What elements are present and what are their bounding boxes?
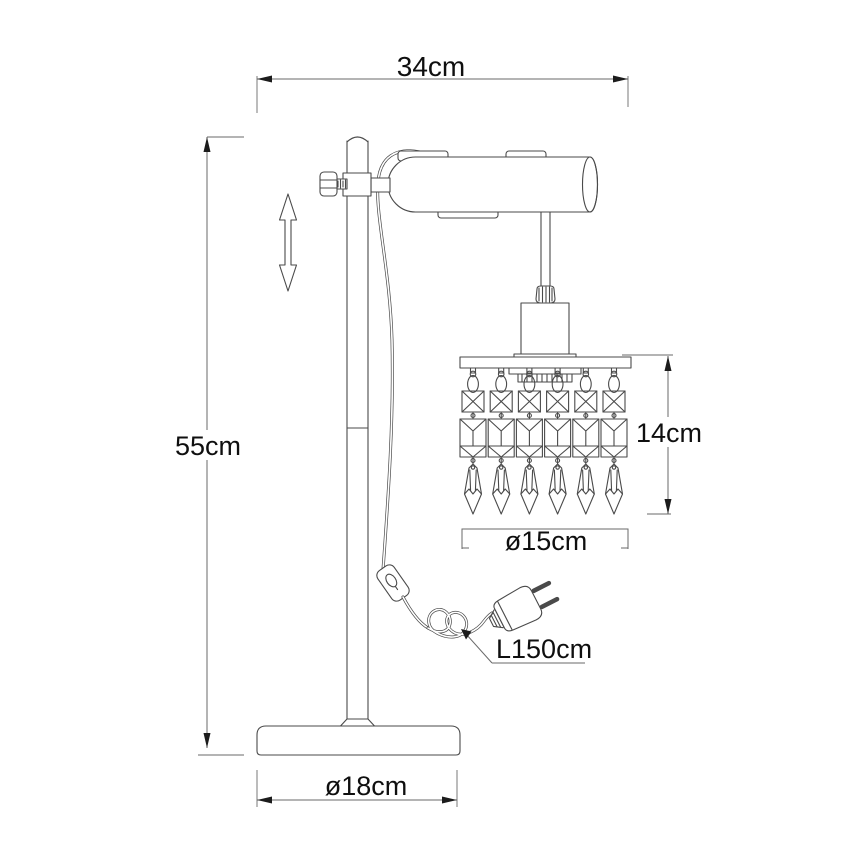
octagon-facets [518,391,540,412]
lamp-pole [341,137,375,726]
base-diameter-label: ø18cm [325,771,408,801]
drop-crystal [521,464,538,514]
crystal-strand [573,368,599,514]
prism-facets [601,419,627,457]
hook-link [580,376,591,393]
crystal-height-label: 14cm [636,418,702,448]
head-connector-stub [371,178,390,192]
drop-crystal [577,464,594,514]
octagon-facets [603,391,625,412]
hook-link [496,376,507,393]
dimension-base-diameter: ø18cm [257,770,457,807]
pendant-socket [460,212,631,382]
hook-link [524,376,535,393]
crystal-strand [601,368,627,514]
hook-link [552,376,563,393]
cable-coil [403,597,492,637]
crystal-diameter-label: ø15cm [505,526,588,556]
overall-height-label: 55cm [175,431,241,461]
height-adjust-arrow-icon [280,194,297,291]
diagram-canvas: 34cm 55cm [0,0,868,868]
octagon-facets [490,391,512,412]
hook-link [609,376,620,393]
dimension-crystal-height: 14cm [622,355,704,514]
dimension-crystal-diameter: ø15cm [462,526,628,556]
holder-ring [509,368,581,374]
drop-hole [500,466,503,469]
prism-facets [573,419,599,457]
crystal-strand [488,368,514,514]
inline-switch [374,563,411,604]
lamp-base [257,726,460,755]
crystal-strand [460,368,486,514]
overall-width-label: 34cm [397,51,465,82]
drop-crystal [549,464,566,514]
prism-facets [460,419,486,457]
barrel-connector [536,286,555,303]
drop-crystal [465,464,482,514]
drop-hole [612,466,615,469]
crystal-strand [545,368,571,514]
octagon-facets [462,391,484,412]
octagon-facets [547,391,569,412]
socket-body [521,303,569,354]
crystal-strands [460,368,627,514]
drop-crystal [606,464,623,514]
dimension-overall-width: 34cm [257,51,628,113]
canopy-plate [460,357,631,368]
power-plug [483,575,561,638]
prism-facets [488,419,514,457]
prism-facets [516,419,542,457]
lamp-head [388,151,598,218]
cable-length-label: L150cm [496,634,592,664]
drop-hole [528,466,531,469]
drop-crystal [493,464,510,514]
hook-link [468,376,479,393]
octagon-facets [575,391,597,412]
drop-hole [471,466,474,469]
power-cable [378,151,420,570]
drop-hole [556,466,559,469]
lamp-technical-drawing: 34cm 55cm [0,0,868,868]
crystal-strand [516,368,542,514]
cable-length-callout: L150cm [461,629,592,664]
dimension-overall-height: 55cm [172,137,244,755]
drop-hole [584,466,587,469]
prism-facets [545,419,571,457]
